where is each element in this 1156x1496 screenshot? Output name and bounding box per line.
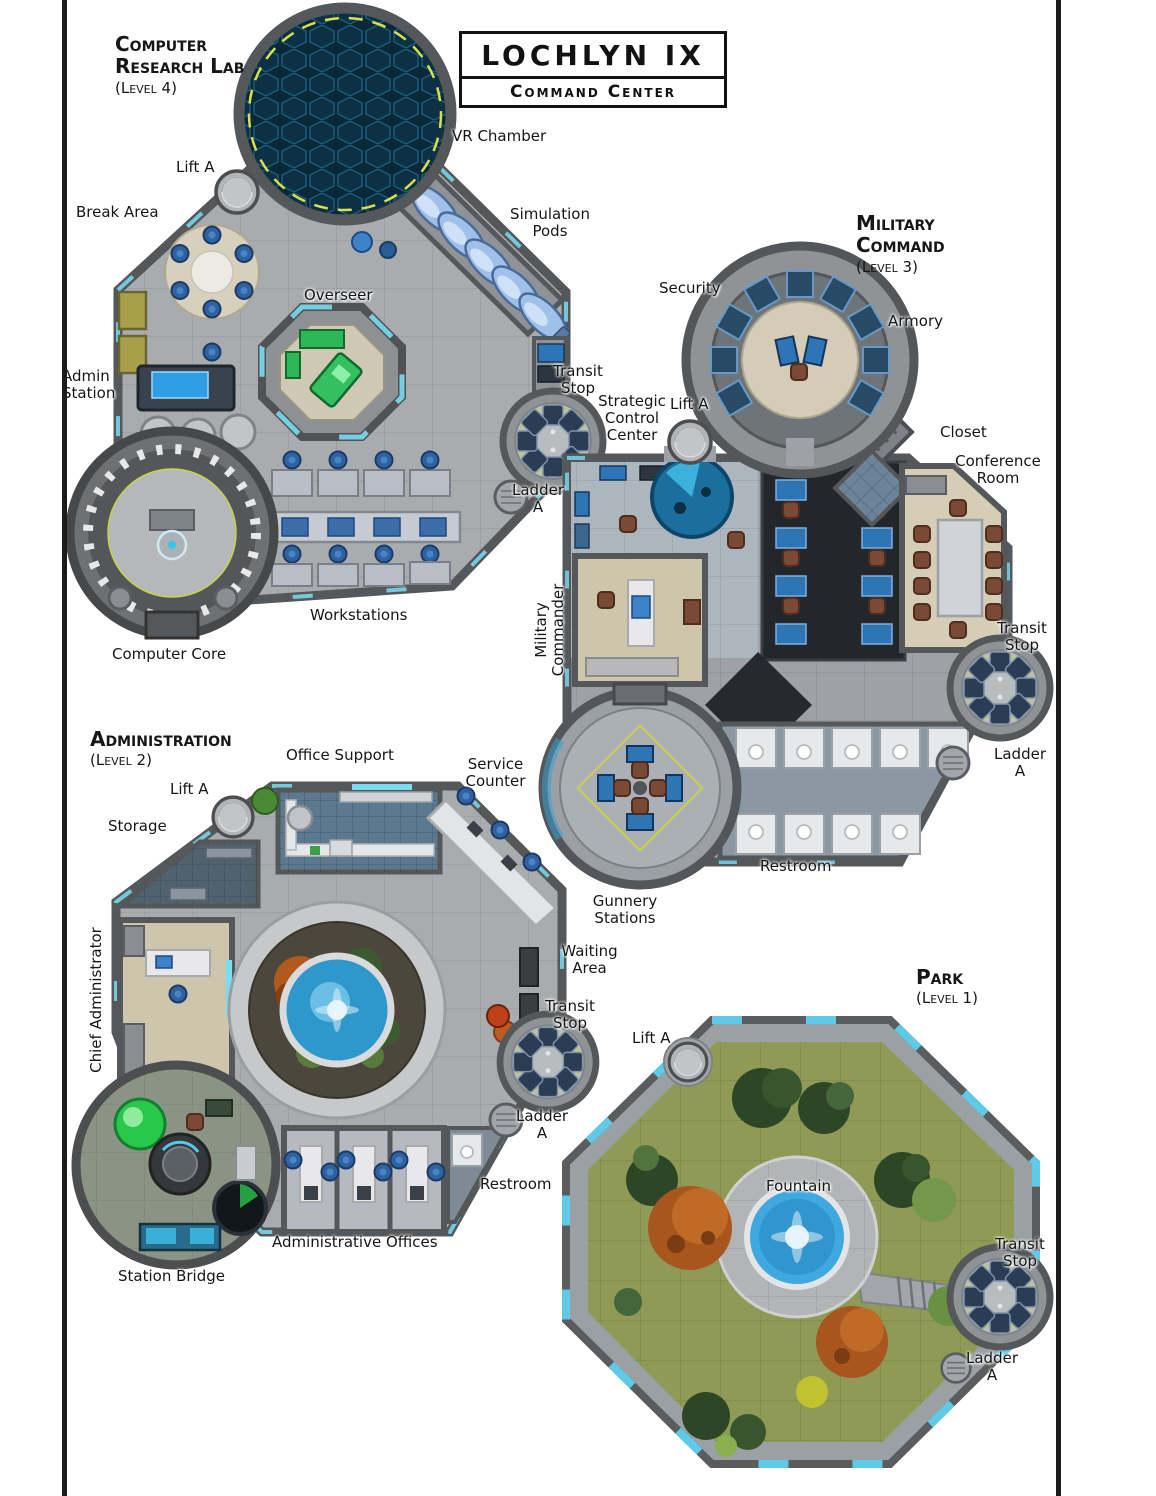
flower-planter [487, 1005, 509, 1027]
workstations-room [270, 452, 460, 587]
label-break-area: Break Area [76, 204, 159, 221]
label-lift-a-l2: Lift A [170, 781, 208, 798]
header-military-command: Military Command (Level 3) [856, 212, 976, 276]
label-restroom-l2: Restroom [480, 1176, 551, 1193]
page-frame-right [1056, 0, 1061, 1496]
lift-a-level4 [216, 171, 258, 213]
plant [252, 788, 278, 814]
break-area-room [165, 225, 259, 319]
label-office-support: Office Support [286, 747, 394, 764]
overseer-room [262, 307, 402, 437]
label-transit-stop-park: Transit Stop [986, 1236, 1054, 1270]
central-garden-fountain [229, 902, 445, 1118]
label-admin-station: Admin Station [62, 368, 132, 402]
label-vr-chamber: VR Chamber [452, 128, 546, 145]
station-subtitle: Command Center [462, 79, 724, 105]
label-service-counter: Service Counter [448, 756, 543, 790]
label-computer-core: Computer Core [112, 646, 226, 663]
lift-a-park [669, 1043, 707, 1081]
label-conference-room: Conference Room [938, 453, 1058, 487]
label-ladder-a-l3: Ladder A [992, 746, 1048, 780]
computer-core-room [70, 431, 274, 638]
label-ladder-a-l4: Ladder A [510, 482, 566, 516]
storage-room [120, 842, 258, 906]
header-computer-research-lab: Computer Research Lab (Level 4) [115, 33, 290, 97]
label-closet: Closet [940, 424, 987, 441]
label-storage: Storage [108, 818, 167, 835]
station-map-page: LOCHLYN IX Command Center Computer Resea… [0, 0, 1156, 1496]
military-commander-room [575, 556, 705, 684]
level-number: (Level 1) [916, 989, 1036, 1007]
label-transit-stop-l2: Transit Stop [536, 998, 604, 1032]
label-chief-administrator: Chief Administrator [88, 915, 106, 1085]
label-workstations: Workstations [310, 607, 407, 624]
title-box: LOCHLYN IX Command Center [459, 31, 727, 108]
label-ladder-a-park: Ladder A [964, 1350, 1020, 1384]
label-overseer: Overseer [304, 287, 373, 304]
label-simulation-pods: Simulation Pods [500, 206, 600, 240]
station-bridge-room [76, 1065, 276, 1265]
label-fountain: Fountain [766, 1178, 831, 1195]
label-armory: Armory [888, 313, 943, 330]
label-gunnery-stations: Gunnery Stations [570, 893, 680, 927]
label-transit-stop-l3: Transit Stop [988, 620, 1056, 654]
label-strategic-control-center: Strategic Control Center [586, 393, 678, 443]
administrative-offices-room [284, 1128, 445, 1232]
label-lift-a-park: Lift A [632, 1030, 670, 1047]
gunnery-stations-room [543, 684, 737, 885]
office-support-room [278, 784, 440, 872]
label-waiting-area: Waiting Area [552, 943, 627, 977]
station-title: LOCHLYN IX [462, 34, 724, 79]
label-ladder-a-l2: Ladder A [514, 1108, 570, 1142]
header-park: Park (Level 1) [916, 966, 1036, 1007]
label-restroom-l3: Restroom [760, 858, 831, 875]
page-frame-left [62, 0, 67, 1496]
chief-administrator-room [120, 920, 232, 1082]
ladder-a-level3 [937, 747, 969, 779]
level1-park [566, 1020, 1050, 1464]
level-name: Military Command [856, 212, 976, 257]
level3-military-command [543, 246, 1050, 885]
level-number: (Level 3) [856, 258, 976, 276]
label-station-bridge: Station Bridge [118, 1268, 225, 1285]
label-administrative-offices: Administrative Offices [272, 1234, 438, 1251]
level-name: Computer Research Lab [115, 33, 290, 78]
lift-a-level2 [213, 797, 253, 837]
label-security: Security [659, 280, 721, 297]
label-military-commander: Military Commander [533, 575, 569, 685]
label-lift-a-l4: Lift A [176, 159, 214, 176]
level-name: Park [916, 966, 1036, 988]
label-lift-a-l3: Lift A [670, 396, 708, 413]
level-number: (Level 4) [115, 79, 290, 97]
